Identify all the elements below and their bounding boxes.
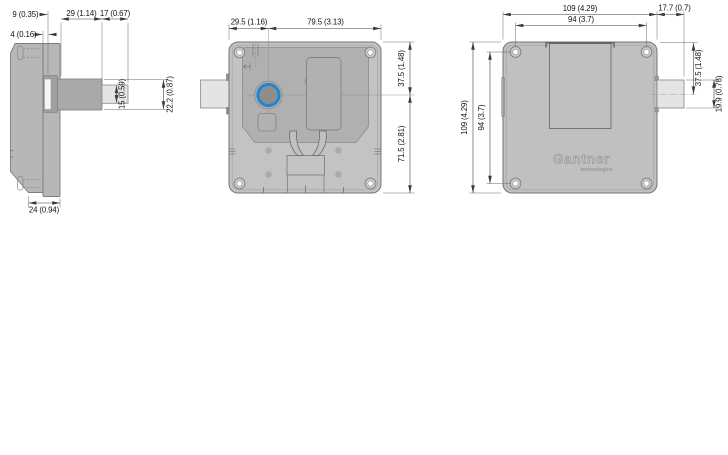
screw-hole — [510, 178, 521, 189]
dim-label-71-5: 71.5 (2.81) — [397, 125, 406, 162]
screw-hole — [365, 47, 376, 58]
dim-label-29-5: 29.5 (1.16) — [231, 18, 268, 27]
side-bolt-shaft — [58, 79, 103, 110]
knob-blue-ring — [258, 84, 279, 105]
reader-window — [550, 44, 612, 129]
dim-label-22-2: 22.2 (0.87) — [166, 76, 175, 113]
dim-label-94-left: 94 (3.7) — [477, 104, 486, 131]
lock-technical-drawing: 9 (0.35) 4 (0.16) 29 (1.14) 17 (0.67) 15… — [0, 0, 728, 455]
screw-hole — [641, 178, 652, 189]
dim-label-17-7: 17.7 (0.7) — [658, 4, 691, 13]
dim-label-37-5-back: 37.5 (1.48) — [397, 50, 406, 87]
back-bolt — [201, 80, 230, 108]
back-view: 29.5 (1.16) 79.5 (3.13) 37.5 (1.48) 71.5… — [201, 18, 415, 194]
screw-hole — [510, 47, 521, 58]
dim-label-94-top: 94 (3.7) — [568, 15, 595, 24]
dim-label-24: 24 (0.94) — [29, 206, 60, 215]
side-front-plate — [43, 44, 60, 197]
screw-hole — [641, 47, 652, 58]
side-housing-body — [11, 44, 44, 193]
dim-label-9: 9 (0.35) — [12, 10, 39, 19]
dim-label-19-9: 19.9 (0.78) — [715, 75, 724, 112]
dim-label-17: 17 (0.67) — [100, 9, 131, 18]
gantner-logo: Gantner — [553, 152, 610, 167]
back-small-cutout — [258, 114, 276, 132]
dim-label-109-top: 109 (4.29) — [563, 4, 598, 13]
lock-knob — [255, 81, 283, 109]
dim-label-37-5-front: 37.5 (1.48) — [694, 49, 703, 86]
front-view: Gantner technologies 109 (4.29) 17.7 (0.… — [460, 4, 724, 194]
screw-hole — [234, 47, 245, 58]
dim-label-29: 29 (1.14) — [66, 9, 97, 18]
side-bolt-slot — [45, 79, 52, 110]
dim-label-109-left: 109 (4.29) — [460, 100, 469, 135]
battery-compartment-notch — [305, 79, 307, 84]
screw-hole — [365, 178, 376, 189]
screw-hole — [234, 178, 245, 189]
technical-drawing-page: 9 (0.35) 4 (0.16) 29 (1.14) 17 (0.67) 15… — [0, 0, 728, 455]
dim-label-4: 4 (0.16) — [10, 30, 37, 39]
dim-label-79-5: 79.5 (3.13) — [307, 18, 344, 27]
gantner-logo-tagline: technologies — [581, 167, 613, 173]
side-view: 9 (0.35) 4 (0.16) 29 (1.14) 17 (0.67) 15… — [10, 9, 174, 215]
battery-compartment — [307, 58, 342, 131]
dim-label-15: 15 (0.59) — [118, 78, 127, 109]
